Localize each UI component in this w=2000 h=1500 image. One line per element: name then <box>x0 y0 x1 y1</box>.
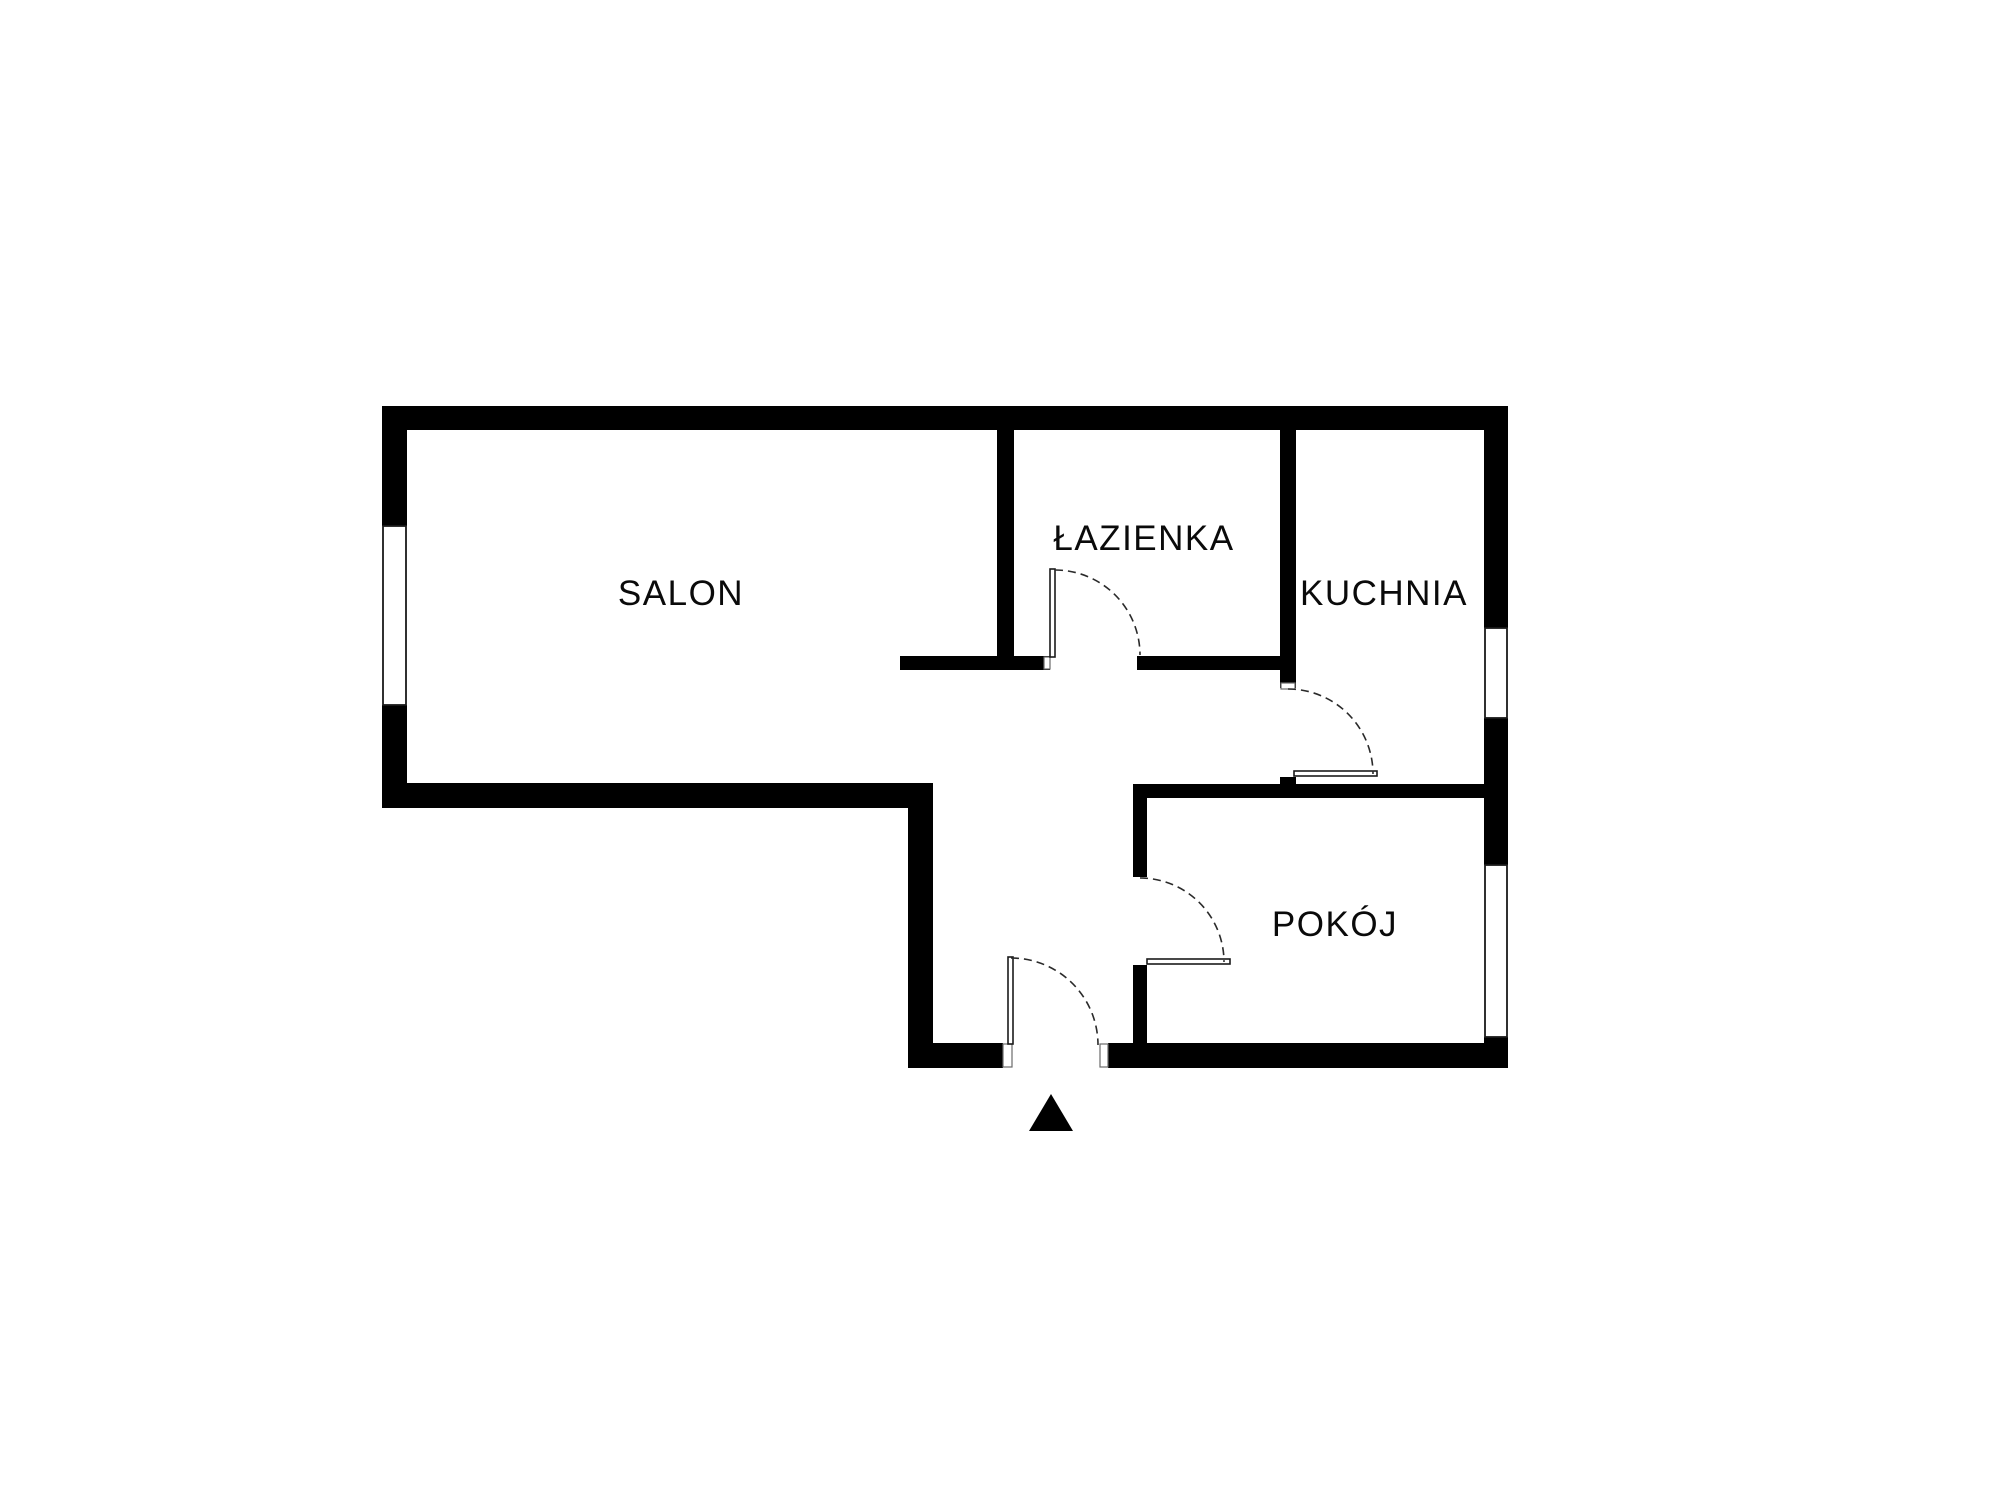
pokoj-door-leaf <box>1147 959 1230 964</box>
bathroom-doorway-jamb <box>1044 657 1050 669</box>
salon-window <box>383 526 406 705</box>
salon-hallway-stub-wall <box>900 656 1050 670</box>
kitchen-doorway-jamb <box>1281 683 1295 689</box>
bathroom-bottom-wall <box>1137 656 1296 670</box>
bathroom-door-leaf <box>1050 569 1055 657</box>
right-exterior-wall-upper <box>1484 406 1508 628</box>
room-kuchnia-label: KUCHNIA <box>1300 574 1468 613</box>
salon-bathroom-wall <box>997 429 1014 670</box>
bottom-exterior-wall-right <box>1108 1043 1508 1068</box>
kuchnia-window <box>1485 628 1507 718</box>
pokoj-left-wall-lower <box>1133 965 1147 1043</box>
room-pokoj-label: POKÓJ <box>1272 905 1398 944</box>
pokoj-top-wall <box>1133 784 1484 798</box>
salon-bottom-exterior-wall <box>382 783 933 808</box>
bathroom-kitchen-wall <box>1280 429 1296 688</box>
plan-background <box>0 0 2000 1500</box>
floorplan-page: SALONŁAZIENKAKUCHNIAPOKÓJ <box>0 0 2000 1500</box>
entrance-door-leaf <box>1008 957 1013 1044</box>
floorplan-svg: SALONŁAZIENKAKUCHNIAPOKÓJ <box>0 0 2000 1500</box>
top-exterior-wall <box>382 406 1508 430</box>
entrance-right-jamb <box>1100 1044 1108 1067</box>
room-lazienka-label: ŁAZIENKA <box>1053 519 1234 558</box>
right-exterior-wall-middle <box>1484 718 1508 865</box>
room-salon-label: SALON <box>618 574 744 613</box>
entrance-left-jamb <box>1003 1044 1012 1067</box>
bottom-exterior-wall-left <box>908 1043 1003 1068</box>
hallway-left-exterior-wall <box>908 783 933 1068</box>
pokoj-left-wall-upper <box>1133 798 1147 877</box>
pokoj-window <box>1485 865 1507 1037</box>
left-exterior-wall-upper <box>382 406 407 526</box>
kitchen-door-leaf <box>1294 771 1377 776</box>
right-exterior-wall-lower <box>1484 1037 1508 1068</box>
